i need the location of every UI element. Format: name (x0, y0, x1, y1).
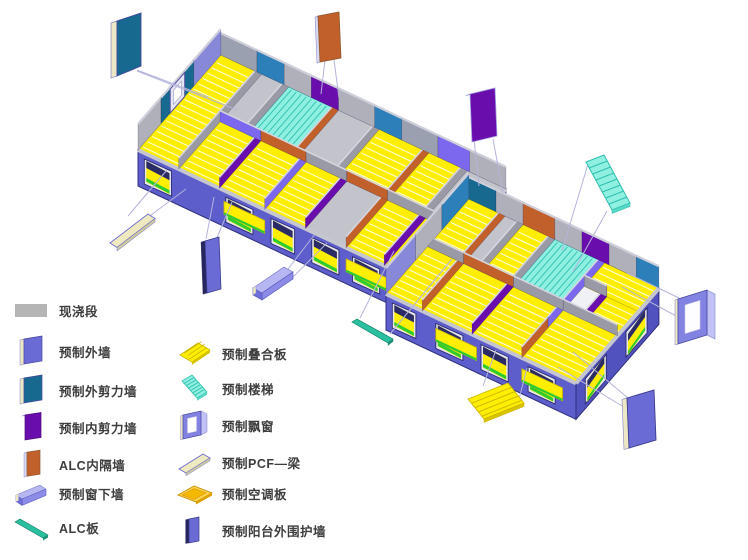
precast-window-sill-wall-icon (12, 476, 52, 510)
precast-composite-slab-icon (175, 336, 215, 370)
precast-balcony-enclosure-wall-icon (175, 513, 215, 547)
callout-stair-flight (586, 155, 630, 214)
precast-bay-window-icon (175, 408, 215, 442)
legend-label: 预制外剪力墙 (59, 381, 137, 400)
precast-stair-icon (175, 371, 215, 405)
legend-label: 预制内剪力墙 (59, 418, 137, 437)
legend-item-precast-exterior-wall: 预制外墙 (12, 334, 111, 368)
legend-label: 预制叠合板 (222, 344, 287, 363)
alc-panel-icon (12, 510, 52, 544)
callout-pcf-beam (110, 214, 155, 251)
precast-ac-slab-icon (175, 476, 215, 510)
legend-item-precast-exterior-shear-wall: 预制外剪力墙 (12, 373, 137, 407)
legend-label: 预制PCF—梁 (222, 453, 301, 472)
legend-item-precast-pcf-beam: 预制PCF—梁 (175, 445, 301, 479)
callout-exterior-shear-wall-panel (111, 13, 141, 78)
legend-item-precast-balcony-enclosure-wall: 预制阳台外围护墙 (175, 513, 326, 547)
legend-item-alc-panel: ALC板 (12, 510, 99, 544)
precast-pcf-beam-icon (175, 445, 215, 479)
callout-window-sill-wall (253, 267, 293, 300)
legend-item-precast-ac-slab: 预制空调板 (175, 476, 287, 510)
callout-bay-window (675, 290, 715, 345)
legend-item-precast-window-sill-wall: 预制窗下墙 (12, 476, 124, 510)
callout-interior-shear-wall-panel (466, 88, 497, 142)
legend-label: ALC内隔墙 (59, 455, 125, 474)
legend-item-precast-stair: 预制楼梯 (175, 371, 274, 405)
callout-exterior-wall-panel (622, 390, 656, 450)
legend-label: 预制空调板 (222, 484, 287, 503)
legend-label: 预制窗下墙 (59, 484, 124, 503)
legend-item-cast-in-place: 现浇段 (12, 293, 98, 327)
callout-alc-partition-panel (315, 12, 341, 63)
cast-in-place-icon (12, 293, 52, 327)
legend-item-precast-interior-shear-wall: 预制内剪力墙 (12, 410, 137, 444)
precast-exterior-wall-icon (12, 334, 52, 368)
precast-interior-shear-wall-icon (12, 410, 52, 444)
legend-label: 预制外墙 (59, 342, 111, 361)
canvas: 现浇段预制外墙预制外剪力墙预制内剪力墙ALC内隔墙预制窗下墙ALC板预制叠合板预… (0, 0, 748, 560)
legend-item-precast-composite-slab: 预制叠合板 (175, 336, 287, 370)
legend-label: 预制阳台外围护墙 (222, 521, 326, 540)
legend-label: ALC板 (59, 518, 99, 537)
legend-label: 预制楼梯 (222, 379, 274, 398)
legend-item-precast-bay-window: 预制飘窗 (175, 408, 274, 442)
callout-balcony-enclosure-wall (201, 237, 221, 294)
legend-label: 预制飘窗 (222, 416, 274, 435)
precast-exterior-shear-wall-icon (12, 373, 52, 407)
legend-label: 现浇段 (59, 301, 98, 320)
